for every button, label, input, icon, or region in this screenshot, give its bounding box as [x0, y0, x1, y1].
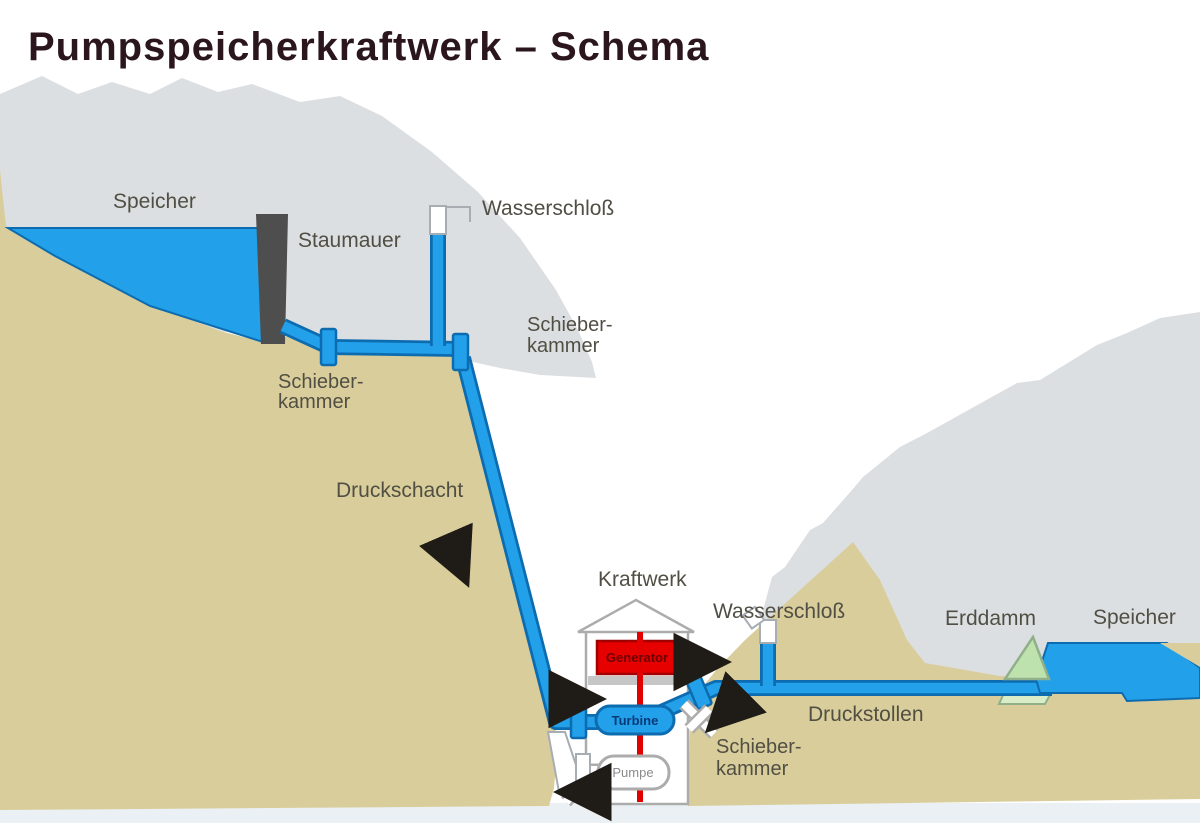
valve-pump [576, 754, 590, 784]
label-speicher-lower: Speicher [1093, 606, 1176, 629]
label-schieberkammer-2-line2: kammer [527, 335, 600, 357]
label-schieberkammer-3-line2: kammer [716, 758, 789, 780]
generator-label: Generator [606, 650, 668, 665]
valve-turbine-inlet [571, 705, 586, 738]
schematic-page: Generator Turbine Pumpe Pumpspeicherkraf… [0, 0, 1200, 823]
label-kraftwerk: Kraftwerk [598, 568, 687, 591]
label-schieberkammer-2-line1: Schieber- [527, 314, 613, 336]
label-schieberkammer-1-line2: kammer [278, 391, 351, 413]
pumpe-label: Pumpe [612, 765, 653, 780]
valve-upper-2 [453, 334, 468, 370]
label-staumauer: Staumauer [298, 229, 401, 252]
valve-upper-1 [321, 329, 336, 365]
label-erddamm: Erddamm [945, 607, 1036, 630]
label-druckschacht: Druckschacht [336, 479, 463, 502]
page-title: Pumpspeicherkraftwerk – Schema [28, 25, 709, 69]
label-speicher-upper: Speicher [113, 190, 196, 213]
surge-cap-upper [430, 206, 446, 234]
surge-cap-lower [760, 620, 776, 643]
label-schieberkammer-3-line1: Schieber- [716, 736, 802, 758]
dam-staumauer [256, 214, 288, 344]
diagram-canvas: Generator Turbine Pumpe Pumpspeicherkraf… [0, 0, 1200, 823]
turbine-label: Turbine [612, 713, 659, 728]
label-wasserschloss-upper: Wasserschloß [482, 197, 614, 220]
label-druckstollen: Druckstollen [808, 703, 924, 726]
label-wasserschloss-lower: Wasserschloß [713, 600, 845, 623]
label-schieberkammer-1-line1: Schieber- [278, 371, 364, 393]
